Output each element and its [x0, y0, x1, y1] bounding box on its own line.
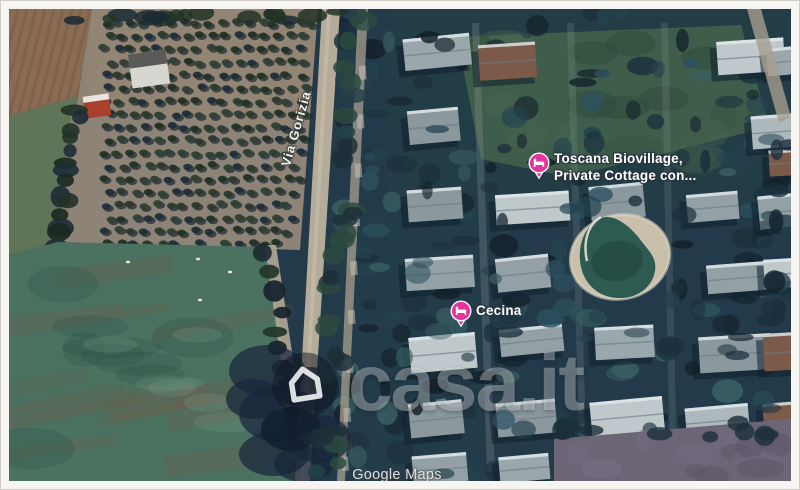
lodging-pin-bed-icon [526, 151, 552, 185]
map-viewport[interactable]: Via Gorizia casa.it Toscana Bio [9, 9, 791, 481]
lodging-pin-bed-icon [448, 299, 474, 333]
screenshot-frame: Via Gorizia casa.it Toscana Bio [0, 0, 800, 490]
map-pin-cecina[interactable] [448, 299, 474, 333]
pin-label-line2: Private Cottage con... [554, 167, 696, 184]
satellite-imagery [9, 9, 791, 481]
google-maps-attribution: Google Maps [352, 467, 442, 481]
map-pin-toscana-biovillage[interactable] [526, 151, 552, 185]
pin-label-cecina[interactable]: Cecina [476, 303, 521, 318]
pin-label-line1: Toscana Biovillage, [554, 150, 696, 167]
pin-label-toscana-biovillage[interactable]: Toscana Biovillage, Private Cottage con.… [554, 150, 696, 184]
